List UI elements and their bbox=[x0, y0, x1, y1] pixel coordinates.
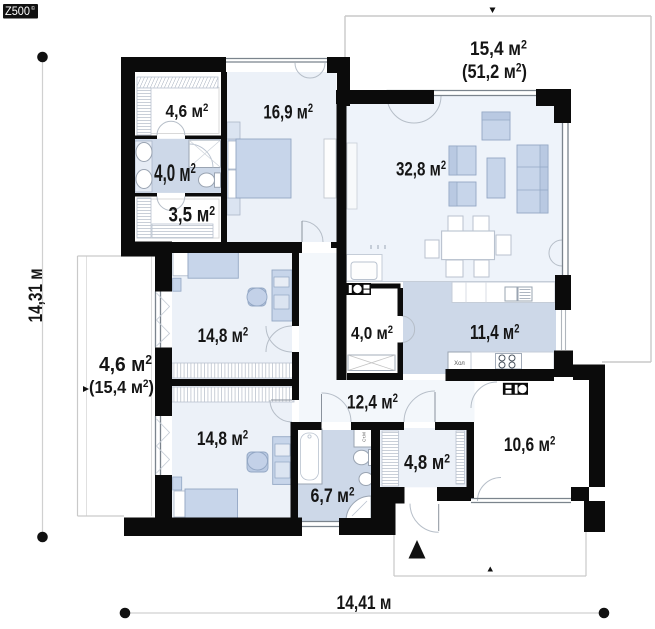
svg-text:11,4 м2: 11,4 м2 bbox=[470, 321, 520, 344]
svg-text:4,6 м2: 4,6 м2 bbox=[166, 101, 209, 121]
svg-text:14,41 м: 14,41 м bbox=[337, 593, 392, 614]
svg-text:4,8 м2: 4,8 м2 bbox=[404, 451, 450, 474]
svg-text:10,6 м2: 10,6 м2 bbox=[504, 434, 556, 457]
svg-text:6,7 м2: 6,7 м2 bbox=[311, 485, 355, 508]
svg-text:4,6 м2: 4,6 м2 bbox=[99, 353, 152, 376]
svg-text:Хол: Хол bbox=[454, 361, 465, 367]
svg-text:12,4 м2: 12,4 м2 bbox=[347, 391, 398, 414]
svg-text:4,0 м2: 4,0 м2 bbox=[351, 323, 393, 343]
svg-text:©: © bbox=[31, 5, 35, 12]
svg-text:32,8 м2: 32,8 м2 bbox=[396, 158, 446, 180]
svg-text:3,5 м2: 3,5 м2 bbox=[168, 203, 215, 227]
svg-text:Z500: Z500 bbox=[5, 6, 30, 18]
svg-text:15,4 м2: 15,4 м2 bbox=[470, 38, 527, 60]
svg-text:14,8 м2: 14,8 м2 bbox=[197, 428, 248, 451]
svg-text:14,8 м2: 14,8 м2 bbox=[198, 325, 249, 348]
svg-text:4,0 м2: 4,0 м2 bbox=[154, 160, 196, 187]
svg-text:16,9 м2: 16,9 м2 bbox=[263, 101, 313, 123]
svg-text:Ст.М: Ст.М bbox=[362, 432, 367, 442]
svg-text:14,31 м: 14,31 м bbox=[25, 268, 47, 322]
